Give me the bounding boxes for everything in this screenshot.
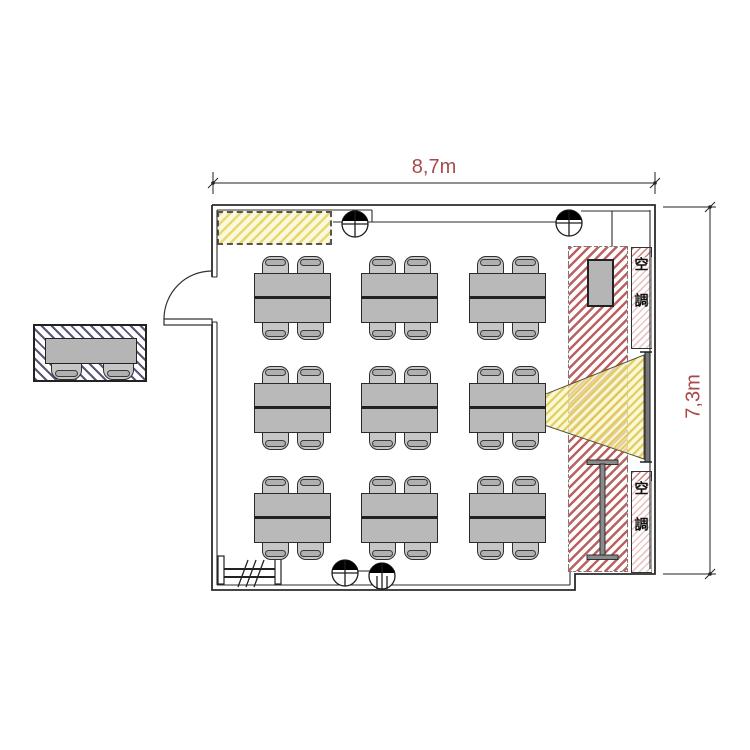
dimension-height-label: 7,3m (683, 357, 706, 437)
table (361, 493, 438, 543)
table (361, 383, 438, 433)
table (254, 493, 331, 543)
table (254, 273, 331, 323)
table (469, 383, 546, 433)
table (469, 493, 546, 543)
table (469, 273, 546, 323)
table (361, 273, 438, 323)
table (254, 383, 331, 433)
floor-plan-canvas: 空調 空調 (0, 0, 750, 750)
dimension-width-label: 8,7m (394, 156, 474, 179)
tables-layer (0, 0, 750, 750)
